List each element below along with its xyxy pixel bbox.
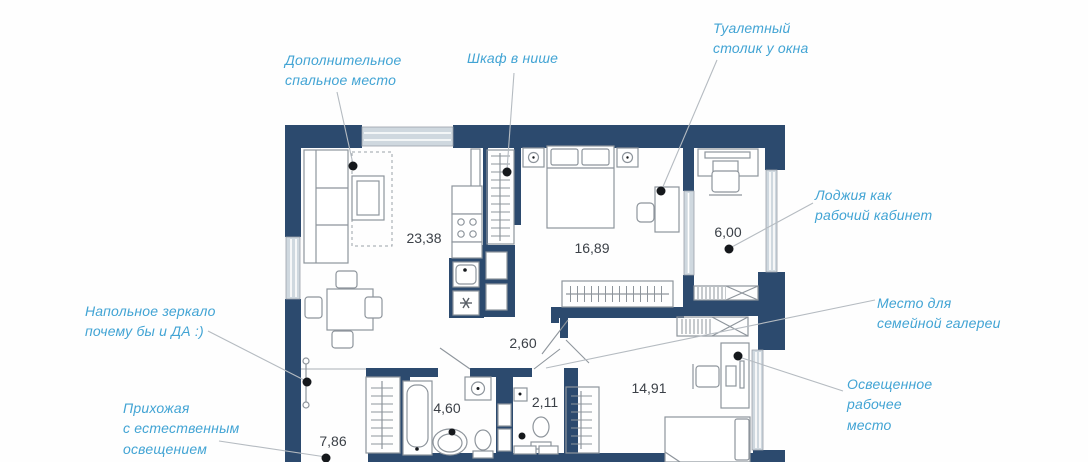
annotation-dressing-table: Туалетный столик у окна (713, 18, 809, 59)
bedroom-furniture (523, 146, 679, 307)
bath-sink-icon (433, 429, 467, 456)
bathroom-fixtures (403, 377, 493, 458)
hood-fan-icon (453, 291, 479, 315)
annotation-niche-wardrobe: Шкаф в нише (467, 48, 558, 68)
area-kids: 14,91 (631, 380, 666, 396)
living-room-furniture (304, 149, 482, 348)
annotation-loggia-office: Лоджия как рабочий кабинет (815, 185, 932, 226)
annotation-lit-workplace: Освещенное рабочее место (847, 374, 932, 435)
nightstand-icon (523, 148, 544, 167)
area-bedroom: 16,89 (574, 240, 609, 256)
area-hallway: 7,86 (319, 433, 346, 449)
hall-closet-icon (366, 377, 400, 453)
floor-plan-page: 23,38 16,89 6,00 2,60 4,60 2,11 7,86 14,… (0, 0, 1088, 462)
loggia-shelf-icon (694, 286, 758, 300)
kitchen-sink-icon (453, 262, 479, 287)
single-bed-icon (665, 417, 750, 462)
annotation-family-gallery: Место для семейной галереи (877, 293, 1001, 334)
double-bed-icon (547, 146, 614, 228)
wc-sink-icon (514, 388, 527, 401)
living-window-icon (362, 127, 453, 146)
wc-counter-icon (514, 446, 558, 454)
area-loggia: 6,00 (714, 224, 741, 240)
toilet-icon (531, 417, 551, 449)
loggia-chair-icon (709, 171, 742, 195)
annotation-floor-mirror: Напольное зеркало почему бы и ДА :) (85, 301, 216, 342)
kids-chair-icon (693, 364, 719, 389)
left-window-icon (286, 237, 300, 299)
area-bathroom: 4,60 (433, 400, 460, 416)
toilet-icon (473, 430, 493, 458)
washing-machine-icon (465, 377, 491, 400)
annotation-hallway-light: Прихожая с естественным освещением (123, 398, 239, 459)
niche-wardrobe-icon (487, 150, 514, 244)
stove-icon (452, 214, 482, 242)
area-living: 23,38 (406, 230, 441, 246)
dining-table-icon (305, 271, 382, 348)
area-corridor: 2,60 (509, 335, 536, 351)
area-wc: 2,11 (532, 394, 558, 410)
loggia-glazing-icon (766, 170, 777, 272)
armchair-icon (352, 176, 384, 220)
sofa-icon (304, 150, 348, 263)
annotation-extra-sleeping-place: Дополнительное спальное место (285, 50, 402, 91)
bathtub-icon (403, 381, 432, 455)
kids-window-icon (752, 350, 763, 450)
bedroom-wardrobe-icon (562, 281, 673, 307)
nightstand-icon (617, 148, 638, 167)
balcony-door-glazing-icon (684, 191, 694, 275)
